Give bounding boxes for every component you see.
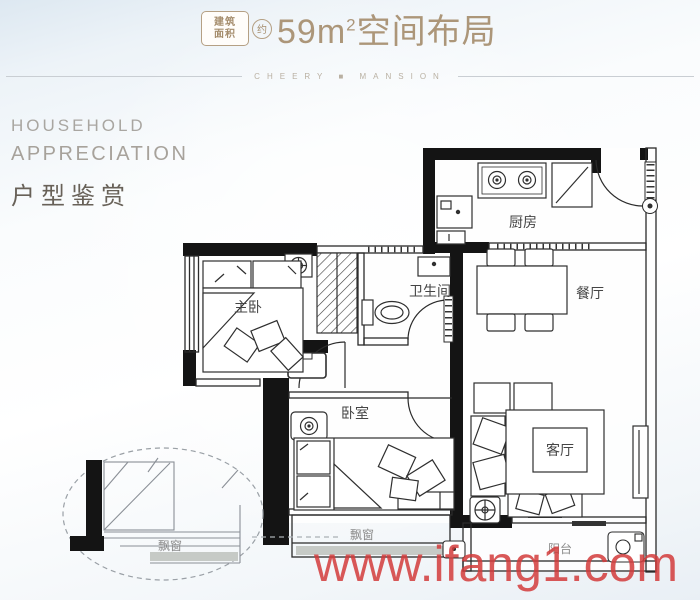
master-bed: [203, 261, 303, 372]
dining-table: [477, 266, 567, 314]
bay-window-detail-label: 飘窗: [158, 539, 182, 553]
wall-bedroom-left: [263, 378, 289, 545]
bedroom-label: 卧室: [341, 405, 369, 421]
ac-unit-icon: [291, 412, 327, 440]
bathroom-sink-icon: [418, 257, 450, 276]
bedroom-bed: [294, 438, 454, 510]
detail-sill: [150, 552, 238, 561]
detail-walls: [70, 460, 104, 551]
pipe-duct-icon: [643, 162, 658, 214]
dining-chair: [525, 314, 553, 331]
dining-chair: [525, 249, 553, 266]
master-bedroom-label: 主卧: [234, 299, 262, 315]
dining-chair: [487, 314, 515, 331]
wall-entry-jamb-right: [640, 148, 648, 160]
wardrobe-icon: [317, 253, 357, 333]
tv-cabinet: [633, 426, 648, 498]
wall-kitchen-top: [423, 148, 599, 160]
wall-master-left-stub: [183, 350, 196, 386]
shower-screen: [444, 296, 453, 342]
watermark: www.ifang1.com: [314, 539, 678, 589]
toilet-icon: [362, 300, 409, 325]
floorplan: 厨房 餐厅: [0, 0, 700, 600]
wall-kitchen-left: [423, 148, 435, 254]
kitchen-label: 厨房: [509, 214, 537, 230]
living-room-label: 客厅: [546, 442, 574, 458]
dining-label: 餐厅: [576, 285, 604, 301]
fridge-icon: [552, 163, 592, 207]
master-bedroom: [203, 261, 303, 372]
fan-icon: [470, 497, 500, 523]
slider-panel-inner: [572, 521, 606, 526]
dining-chair: [487, 249, 515, 266]
bathroom-label: 卫生间: [409, 283, 451, 299]
stove-icon: [478, 163, 546, 198]
